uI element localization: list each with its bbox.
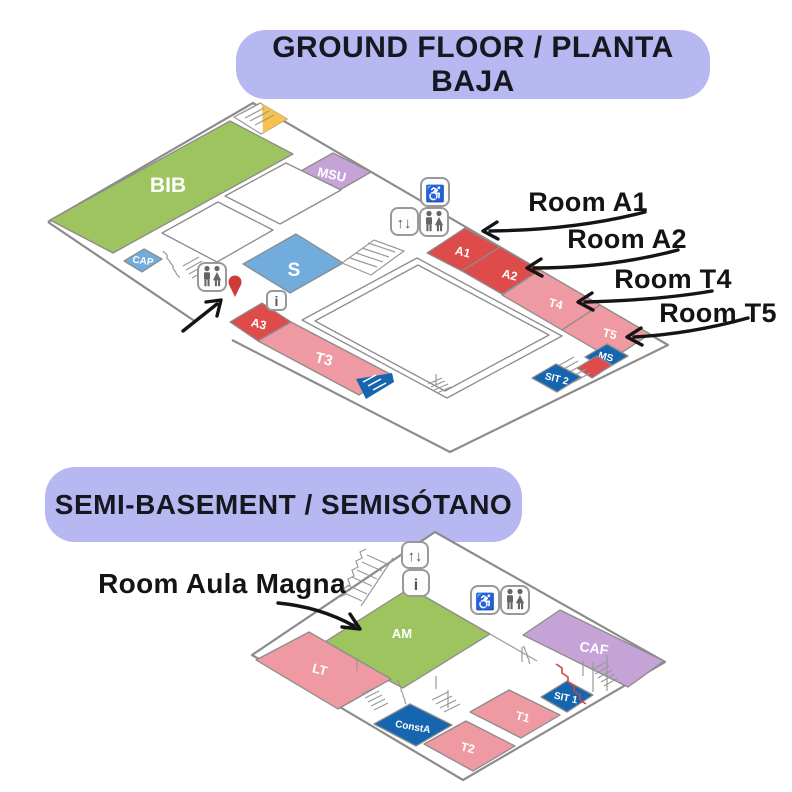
wheelchair-icon: ♿ — [421, 178, 449, 206]
floor-plan-canvas: BIB MSU S CAP A1 A2 T4 T5 A3 T3 — [0, 0, 792, 792]
svg-text:♿: ♿ — [475, 592, 495, 611]
floor-plan-infographic: GROUND FLOOR / PLANTA BAJA SEMI-BASEMENT… — [0, 0, 792, 792]
room-am-label: AM — [392, 626, 412, 641]
ground-floor-map: BIB MSU S CAP A1 A2 T4 T5 A3 T3 — [48, 103, 668, 452]
info-icon: i — [403, 570, 429, 596]
annotation-room-t5: Room T5 — [659, 298, 777, 328]
svg-text:i: i — [275, 293, 279, 309]
svg-text:↑↓: ↑↓ — [408, 548, 423, 565]
wheelchair-icon: ♿ — [471, 586, 499, 614]
annotation-room-aula-magna: Room Aula Magna — [98, 568, 346, 599]
room-bib-label: BIB — [150, 174, 186, 197]
annotation-room-t4: Room T4 — [614, 264, 732, 294]
restroom-icon — [198, 263, 226, 291]
ground-building-footprint — [48, 103, 668, 452]
elevator-icon: ↑↓ — [391, 208, 418, 235]
restroom-icon — [420, 208, 448, 236]
annotation-room-a1: Room A1 — [528, 187, 648, 217]
room-s-label: S — [288, 260, 301, 281]
restroom-icon — [501, 586, 529, 614]
svg-text:↑↓: ↑↓ — [397, 215, 412, 232]
svg-text:♿: ♿ — [425, 184, 445, 203]
elevator-icon: ↑↓ — [402, 542, 428, 568]
svg-text:i: i — [414, 577, 418, 594]
annotation-room-a2: Room A2 — [567, 224, 687, 254]
info-icon: i — [267, 291, 286, 310]
